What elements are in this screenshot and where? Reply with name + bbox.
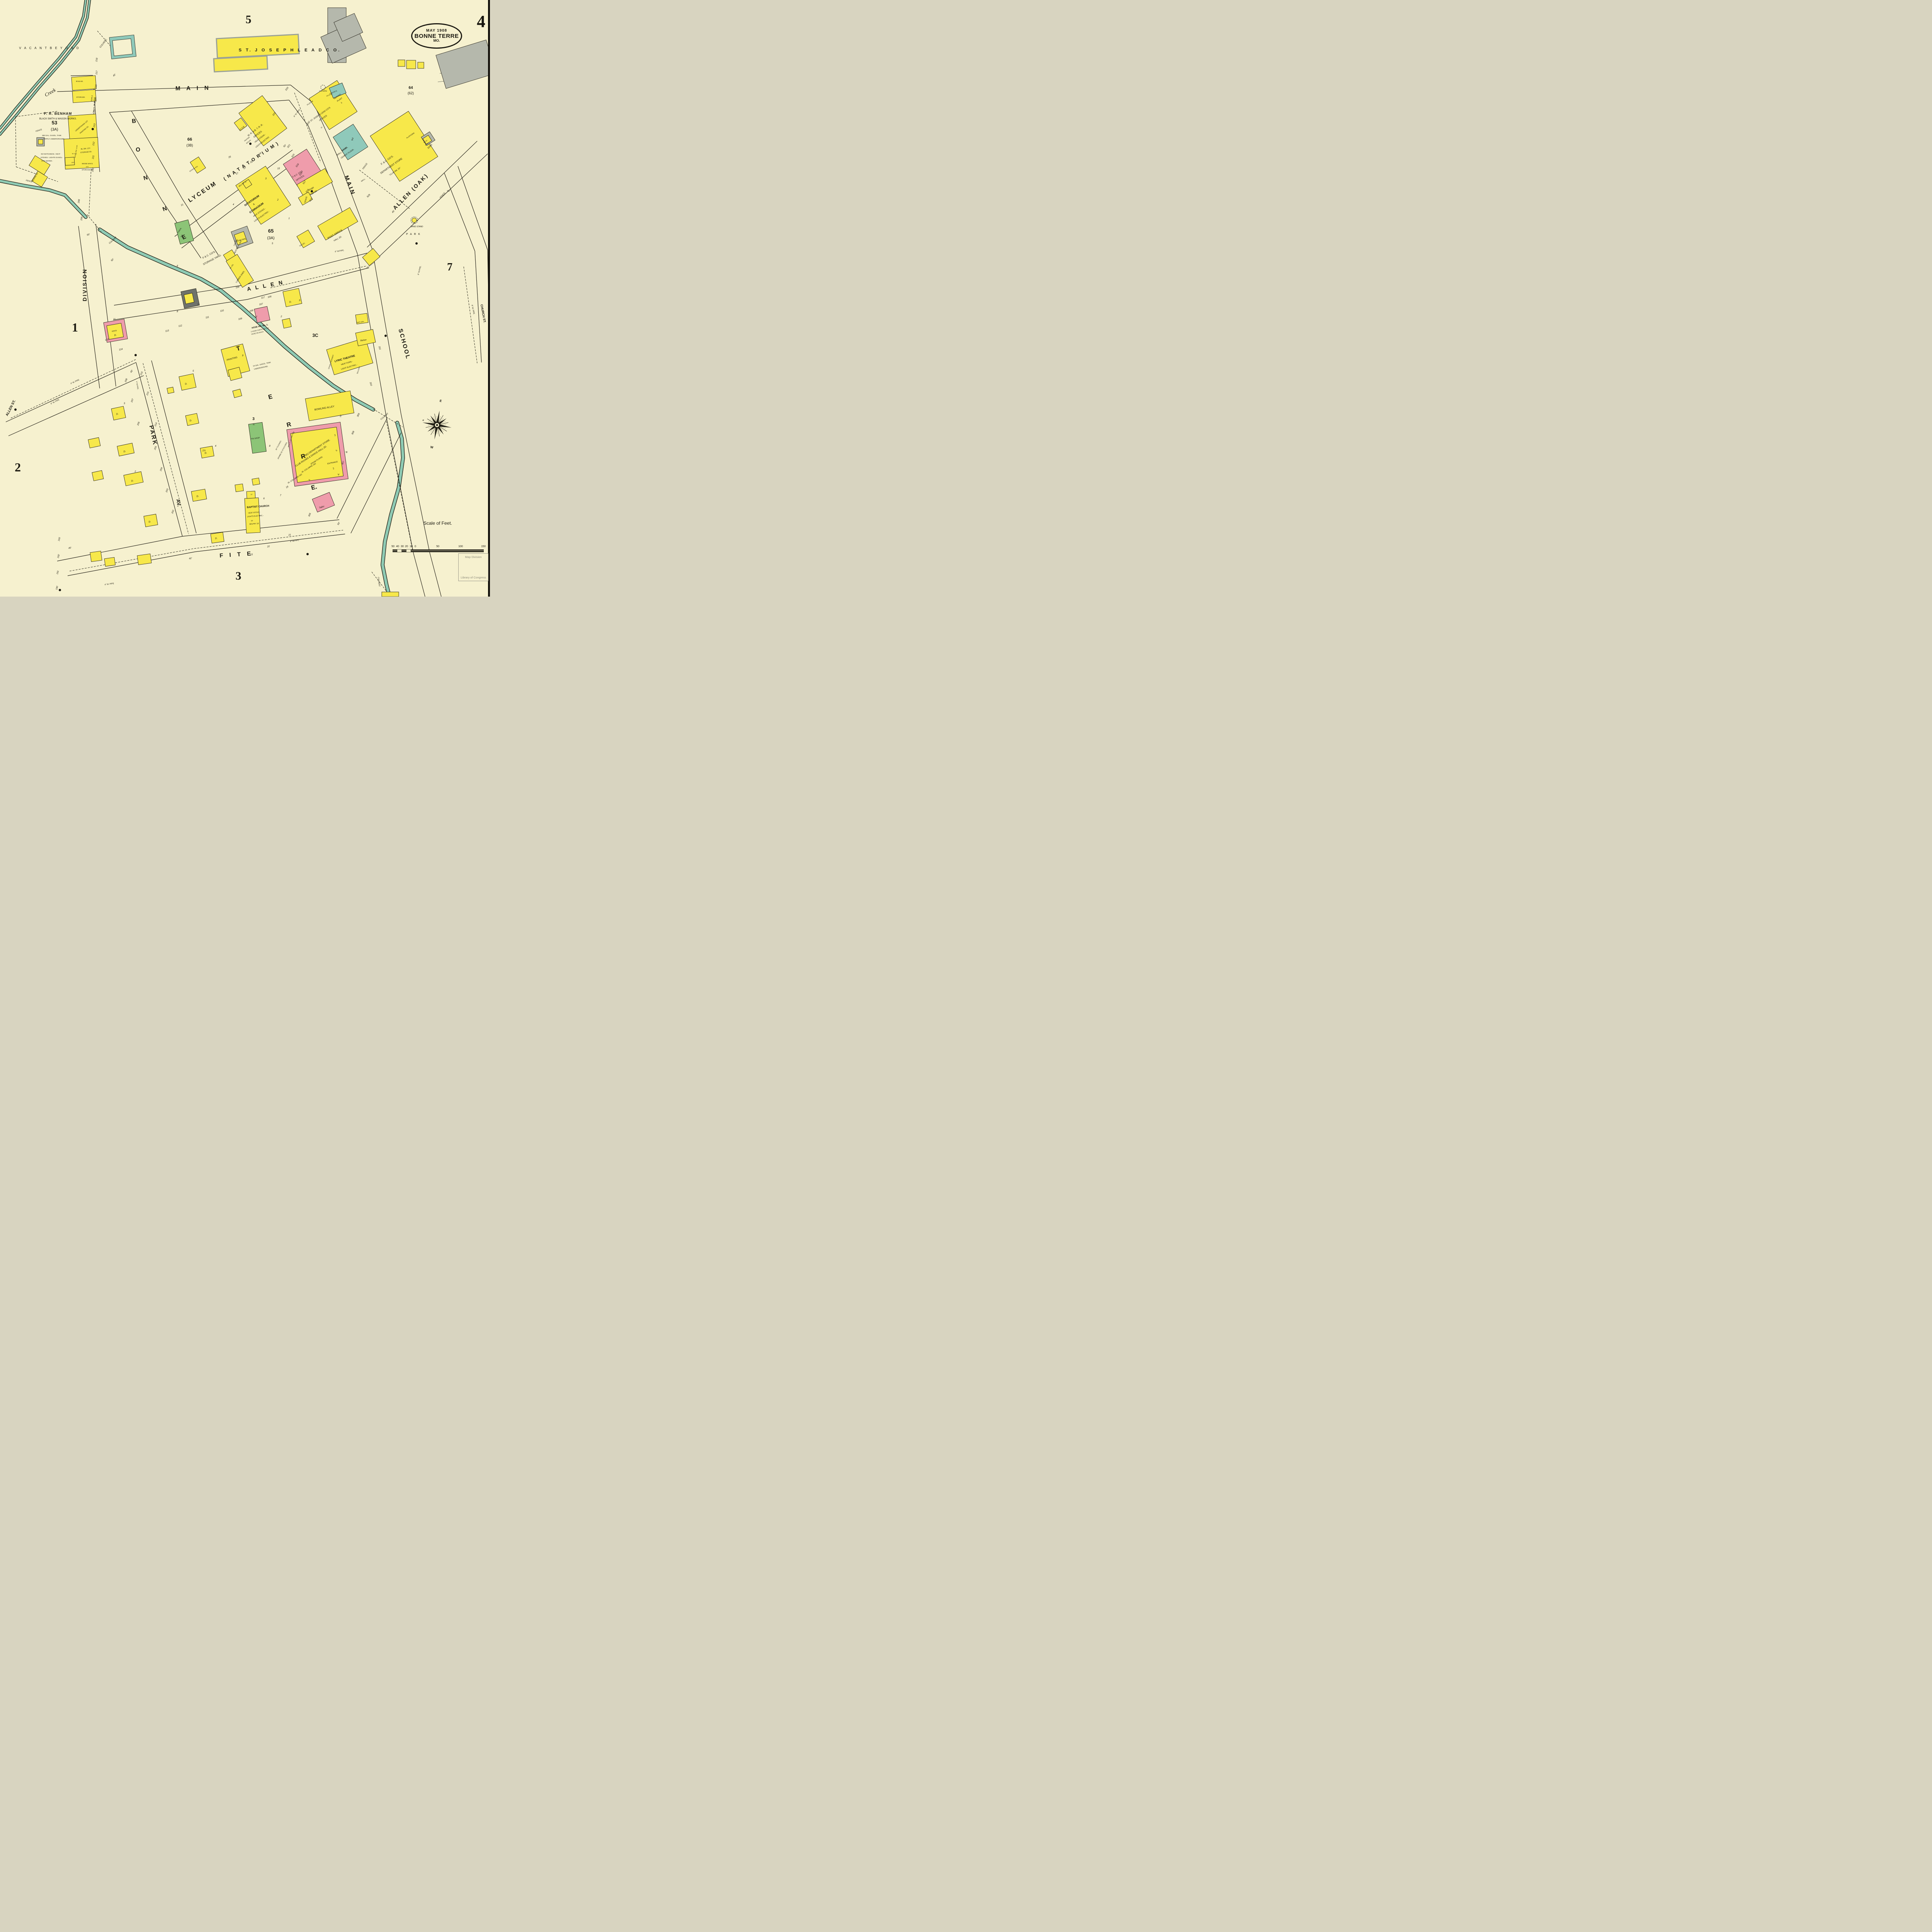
street-name-label: M A I N	[175, 85, 211, 92]
scale-tick-label: 150	[481, 545, 486, 548]
lot-number: 15	[277, 168, 280, 170]
map-annotation: NO WATCHMAN.- HEAT	[41, 153, 60, 155]
adjacent-sheet-number: 1	[72, 320, 78, 334]
map-annotation: (3A)	[267, 236, 275, 240]
map-annotation: D.	[204, 452, 207, 455]
scale-tick-label: 20	[405, 545, 408, 548]
map-canvas: 504030201005010015053127M A I NMAINLYCEU…	[0, 0, 490, 597]
hydrant-dot	[306, 553, 309, 555]
adjacent-sheet-number: 5	[246, 13, 252, 26]
hydrant-dot	[92, 128, 94, 130]
map-annotation: 2	[351, 137, 353, 141]
lot-number: 21	[288, 534, 291, 537]
building-footprint	[179, 374, 196, 390]
lot-number: 3.	[299, 299, 301, 302]
scale-bar-segment	[397, 549, 402, 552]
map-annotation: P A R K	[406, 233, 421, 236]
lot-number: 22	[267, 545, 270, 548]
scale-tick-label: 10	[410, 545, 413, 548]
building-footprint	[38, 139, 43, 144]
stamp-line-1: Map Division	[459, 555, 488, 559]
scale-tick-label: 30	[401, 545, 404, 548]
building-footprint	[191, 489, 207, 502]
map-annotation: D.	[189, 419, 192, 422]
adjacent-sheet-number: 2	[15, 460, 21, 474]
hydrant-dot	[249, 143, 252, 145]
building-footprint	[71, 76, 96, 90]
building-footprint	[184, 293, 194, 304]
street-name-label: S T. J O S E P H L E A D C O.	[239, 48, 341, 53]
building-footprint	[406, 60, 416, 69]
map-annotation: D.	[148, 521, 151, 524]
building-footprint	[382, 592, 399, 597]
map-title-state: MO.	[412, 39, 461, 43]
scale-tick-label: 40	[396, 545, 399, 548]
library-stamp: Map Division Library of Congress	[458, 553, 488, 581]
hydrant-dot	[415, 242, 418, 245]
lot-number: 2	[277, 199, 279, 201]
lot-number: 1½	[202, 449, 206, 452]
building-footprint	[200, 446, 214, 458]
building-footprint	[90, 551, 102, 562]
street-name-label: B	[131, 118, 136, 125]
map-annotation: 11.	[253, 423, 255, 426]
lot-number: 45'	[68, 547, 72, 550]
map-annotation: 3	[252, 417, 255, 421]
map-annotation: D.	[114, 334, 117, 337]
map-annotation: STOVES.- LIGHTS GASOL.-	[41, 156, 63, 158]
building-footprint	[112, 39, 133, 56]
building-footprint	[283, 288, 302, 307]
building-footprint	[252, 478, 260, 485]
lot-number: 2	[280, 316, 282, 318]
building-footprint	[92, 471, 104, 481]
lot-number: 11	[113, 318, 116, 321]
building-footprint	[167, 387, 174, 394]
lot-number: 23	[250, 553, 253, 556]
map-annotation: D.	[131, 480, 134, 482]
compass-hub-dot	[436, 424, 438, 426]
building-footprint	[144, 514, 158, 527]
map-annotation: P. R. BENHAM	[44, 112, 72, 116]
scale-tick-label: 0	[415, 545, 416, 548]
map-annotation: CISTERN	[319, 90, 327, 92]
lot-number: 1	[288, 218, 289, 220]
map-annotation: 53	[52, 120, 57, 126]
map-annotation: WOOD W'K'G	[82, 163, 93, 165]
map-annotation: 1ST.	[86, 166, 89, 168]
stamp-line-2: Library of Congress	[459, 576, 488, 579]
map-annotation: (3A)	[51, 128, 58, 132]
map-annotation: D.	[185, 383, 187, 385]
map-annotation: (3B)	[186, 143, 193, 147]
map-annotation: D.	[215, 537, 218, 540]
page-edge-border	[488, 0, 490, 597]
map-annotation: BLACK SMITH & WAGON WORKS.	[39, 118, 77, 120]
building-footprint	[137, 554, 151, 565]
map-annotation: 3C	[312, 333, 318, 338]
map-annotation: IR.W.HO.	[76, 80, 83, 82]
map-annotation: (62)	[408, 91, 414, 95]
building-footprint	[185, 413, 199, 426]
building-footprint	[104, 557, 116, 566]
map-annotation: 65	[268, 228, 274, 234]
building-footprint	[214, 56, 268, 72]
map-annotation: OFF.	[71, 162, 75, 163]
scale-tick-label: 50	[391, 545, 395, 548]
map-annotation: D.	[116, 413, 119, 415]
sheet-page-number: 4	[472, 12, 490, 31]
sanborn-map-sheet: 504030201005010015053127M A I NMAINLYCEU…	[0, 0, 490, 597]
street-name-label: DIVISION	[82, 268, 88, 301]
map-annotation: 850 GAL. GASOL. TANK	[42, 134, 61, 136]
map-annotation: D.	[289, 301, 292, 303]
scale-tick-label: 100	[458, 545, 463, 548]
map-title-city: BONNE TERRE	[412, 33, 461, 39]
building-footprint	[254, 306, 270, 323]
map-annotation: D.	[196, 495, 199, 498]
building-footprint	[282, 318, 291, 328]
map-annotation: 66	[187, 137, 192, 142]
map-annotation: 12'	[250, 494, 252, 495]
map-annotation: PARTLY UNDERGROUND.	[43, 138, 65, 140]
map-annotation: BAND STAND	[411, 226, 423, 228]
hydrant-dot	[134, 354, 137, 356]
adjacent-sheet-number: 3	[236, 570, 241, 582]
hydrant-dot	[14, 408, 17, 411]
map-annotation: D.	[123, 450, 126, 453]
map-annotation: Scale of Feet.	[423, 520, 452, 526]
lot-number: 2	[134, 471, 136, 473]
building-footprint	[111, 406, 126, 420]
map-annotation: STORAGE.	[76, 96, 85, 98]
map-annotation: CITY WATER.-	[41, 160, 53, 162]
band-stand-structure	[412, 218, 417, 223]
map-annotation: 64	[408, 86, 413, 90]
hydrant-dot	[59, 589, 61, 591]
building-footprint	[398, 60, 405, 66]
map-annotation: V A C A N T B E Y O N D	[19, 46, 80, 50]
scale-bar-segment	[406, 549, 411, 552]
lot-number: 42'	[189, 558, 192, 560]
scale-tick-label: 50	[436, 545, 439, 548]
building-footprint	[216, 34, 299, 58]
adjacent-sheet-number: 7	[447, 261, 452, 273]
hydrant-dot	[384, 335, 387, 337]
map-title-oval: MAY 1908 BONNE TERRE MO.	[411, 23, 462, 49]
building-footprint	[418, 62, 424, 68]
map-annotation: 18'	[251, 520, 253, 522]
building-footprint	[235, 484, 243, 492]
